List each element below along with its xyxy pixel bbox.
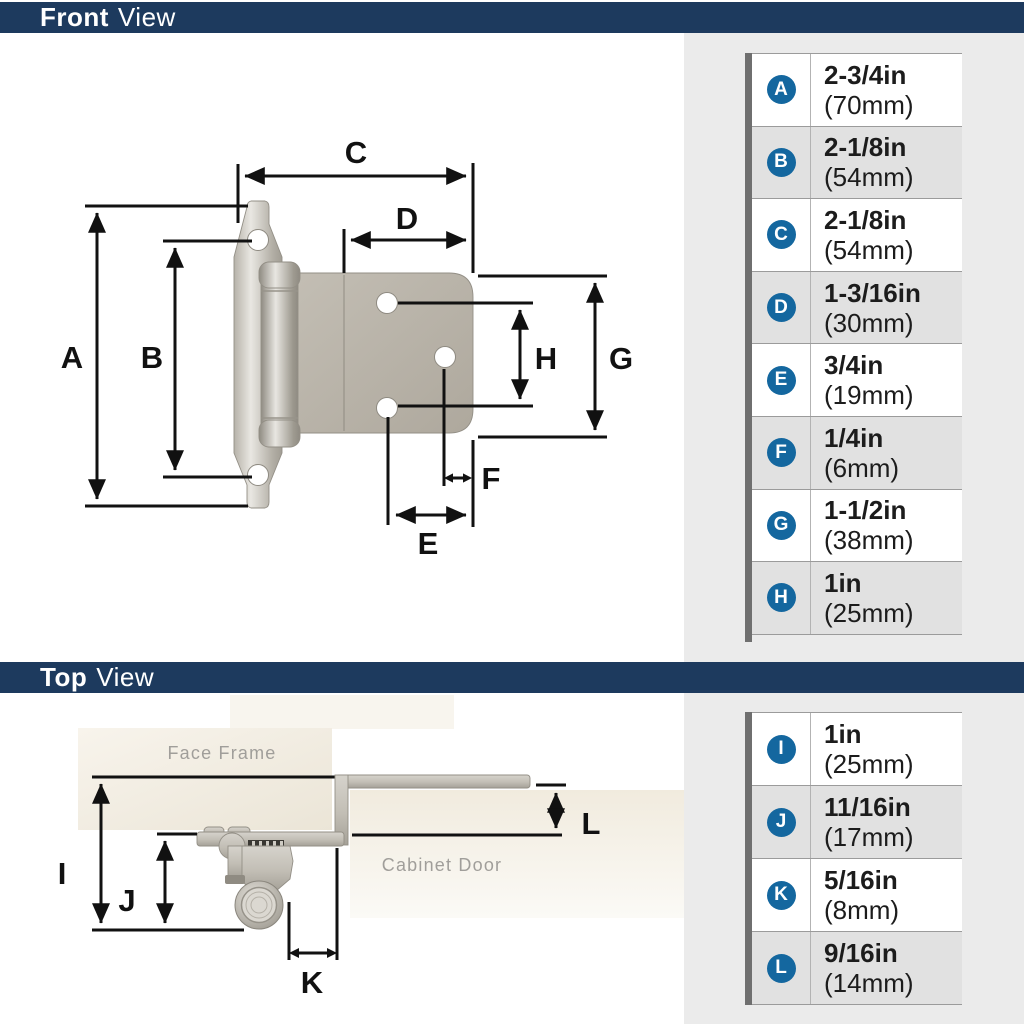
top-view-banner: Top View — [0, 662, 1024, 693]
dimension-badge: G — [767, 511, 796, 540]
dimension-mm: (70mm) — [824, 90, 914, 120]
dimension-label-I: I — [58, 856, 67, 891]
dimension-mm: (54mm) — [824, 235, 914, 265]
cabinet-door-label: Cabinet Door — [382, 855, 502, 875]
plate-screw-hole — [435, 347, 456, 368]
dimension-mm: (38mm) — [824, 525, 914, 555]
dimension-mm: (6mm) — [824, 453, 899, 483]
banner-title-regular: View — [118, 2, 176, 33]
dimension-mm: (25mm) — [824, 749, 914, 779]
dimension-inches: 1/4in — [824, 423, 899, 453]
face-frame-label: Face Frame — [167, 743, 276, 763]
page: Front View Top View A 2-3/4in(70mm) B 2-… — [0, 0, 1024, 1024]
dimension-inches: 1-3/16in — [824, 278, 921, 308]
plate-screw-hole — [377, 293, 398, 314]
barrel-bottom-cap — [259, 420, 300, 447]
front-dimension-table: A 2-3/4in(70mm) B 2-1/8in(54mm) C 2-1/8i… — [752, 53, 962, 635]
table-row: C 2-1/8in(54mm) — [752, 199, 962, 272]
dimension-badge: K — [767, 881, 796, 910]
hinge-arm-left — [228, 846, 242, 878]
dimension-badge: I — [767, 735, 796, 764]
cabinet-door-block — [350, 790, 684, 918]
dimension-badge: D — [767, 293, 796, 322]
dimension-inches: 11/16in — [824, 792, 914, 822]
plate-screw-hole — [377, 398, 398, 419]
dimension-mm: (17mm) — [824, 822, 914, 852]
front-view-banner: Front View — [0, 2, 1024, 33]
banner-title-regular: View — [96, 662, 154, 693]
dimension-label-L: L — [582, 806, 601, 841]
table-row: L 9/16in(14mm) — [752, 932, 962, 1005]
hinge-barrel — [261, 262, 298, 447]
door-wrap-flap — [336, 775, 530, 788]
dimension-mm: (25mm) — [824, 598, 914, 628]
dimension-label-G: G — [609, 341, 633, 376]
dimension-inches: 1-1/2in — [824, 495, 914, 525]
dimension-K: K — [289, 848, 337, 1000]
table-row: K 5/16in(8mm) — [752, 859, 962, 932]
dimension-label-K: K — [301, 965, 324, 1000]
dimension-mm: (54mm) — [824, 162, 914, 192]
dimension-badge: L — [767, 954, 796, 983]
dimension-inches: 2-1/8in — [824, 132, 914, 162]
table-row: D 1-3/16in(30mm) — [752, 272, 962, 345]
table-row: E 3/4in(19mm) — [752, 344, 962, 417]
top-dimension-table: I 1in(25mm) J 11/16in(17mm) K 5/16in(8mm… — [752, 712, 962, 1005]
dimension-D: D — [344, 201, 466, 273]
wing-screw-hole — [248, 465, 269, 486]
table-row: F 1/4in(6mm) — [752, 417, 962, 490]
dimension-inches: 2-1/8in — [824, 205, 914, 235]
table-row: A 2-3/4in(70mm) — [752, 54, 962, 127]
banner-title-bold: Front — [40, 2, 109, 33]
dimension-inches: 3/4in — [824, 350, 914, 380]
dimension-J: J — [118, 834, 197, 923]
table-row: I 1in(25mm) — [752, 713, 962, 786]
dimension-badge: H — [767, 583, 796, 612]
dimension-inches: 5/16in — [824, 865, 899, 895]
top-view-diagram: Face Frame Cabinet Door — [0, 693, 684, 1024]
dimension-badge: J — [767, 808, 796, 837]
dimension-E: E — [388, 417, 473, 561]
table-accent-bar — [745, 712, 752, 1005]
dimension-inches: 1in — [824, 719, 914, 749]
dimension-badge: F — [767, 438, 796, 467]
dimension-badge: A — [767, 75, 796, 104]
dimension-badge: E — [767, 366, 796, 395]
dimension-inches: 2-3/4in — [824, 60, 914, 90]
front-view-diagram: A B C D G — [0, 33, 684, 662]
roller-face — [242, 888, 277, 923]
table-row: B 2-1/8in(54mm) — [752, 127, 962, 200]
dimension-label-C: C — [345, 135, 367, 170]
hinge-arm-foot — [225, 875, 245, 884]
dimension-badge: C — [767, 220, 796, 249]
table-accent-bar — [745, 53, 752, 642]
dimension-mm: (30mm) — [824, 308, 921, 338]
dimension-label-D: D — [396, 201, 418, 236]
dimension-label-H: H — [535, 341, 557, 376]
face-frame-highlight — [230, 695, 454, 729]
dimension-mm: (19mm) — [824, 380, 914, 410]
dimension-label-E: E — [418, 526, 439, 561]
table-row: H 1in(25mm) — [752, 562, 962, 635]
banner-title-bold: Top — [40, 662, 87, 693]
dimension-inches: 1in — [824, 568, 914, 598]
dimension-label-A: A — [61, 340, 83, 375]
dimension-mm: (8mm) — [824, 895, 899, 925]
table-row: G 1-1/2in(38mm) — [752, 490, 962, 563]
dimension-label-J: J — [118, 883, 135, 918]
barrel-top-cap — [259, 262, 300, 288]
dimension-label-F: F — [482, 461, 501, 496]
dimension-inches: 9/16in — [824, 938, 914, 968]
dimension-badge: B — [767, 148, 796, 177]
table-row: J 11/16in(17mm) — [752, 786, 962, 859]
hinge-front-illustration — [234, 201, 473, 508]
dimension-label-B: B — [141, 340, 163, 375]
dimension-mm: (14mm) — [824, 968, 914, 998]
